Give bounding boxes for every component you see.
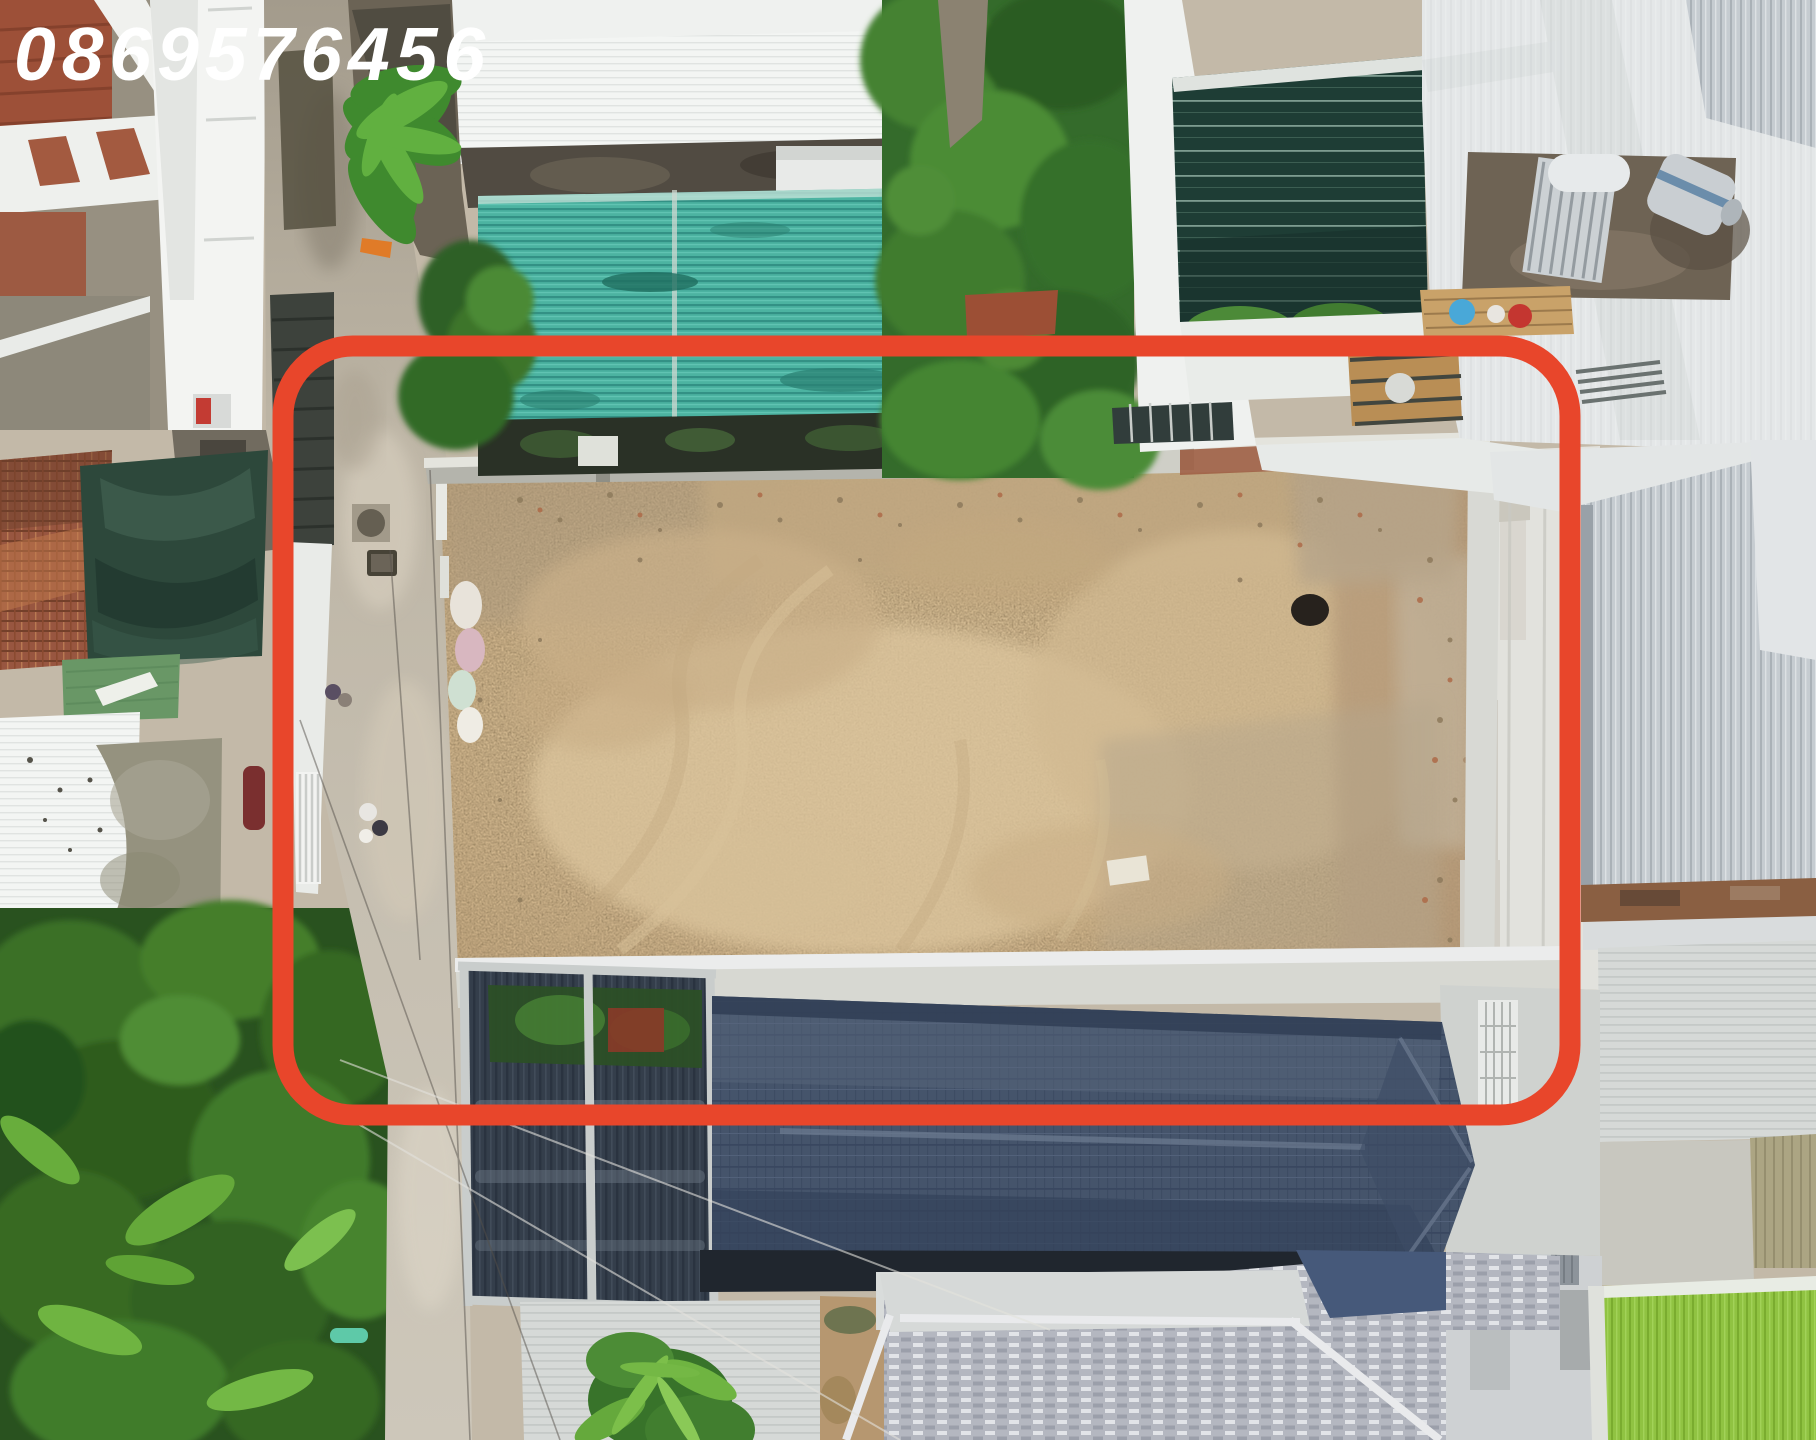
svg-text:0869576456: 0869576456 <box>14 12 491 96</box>
